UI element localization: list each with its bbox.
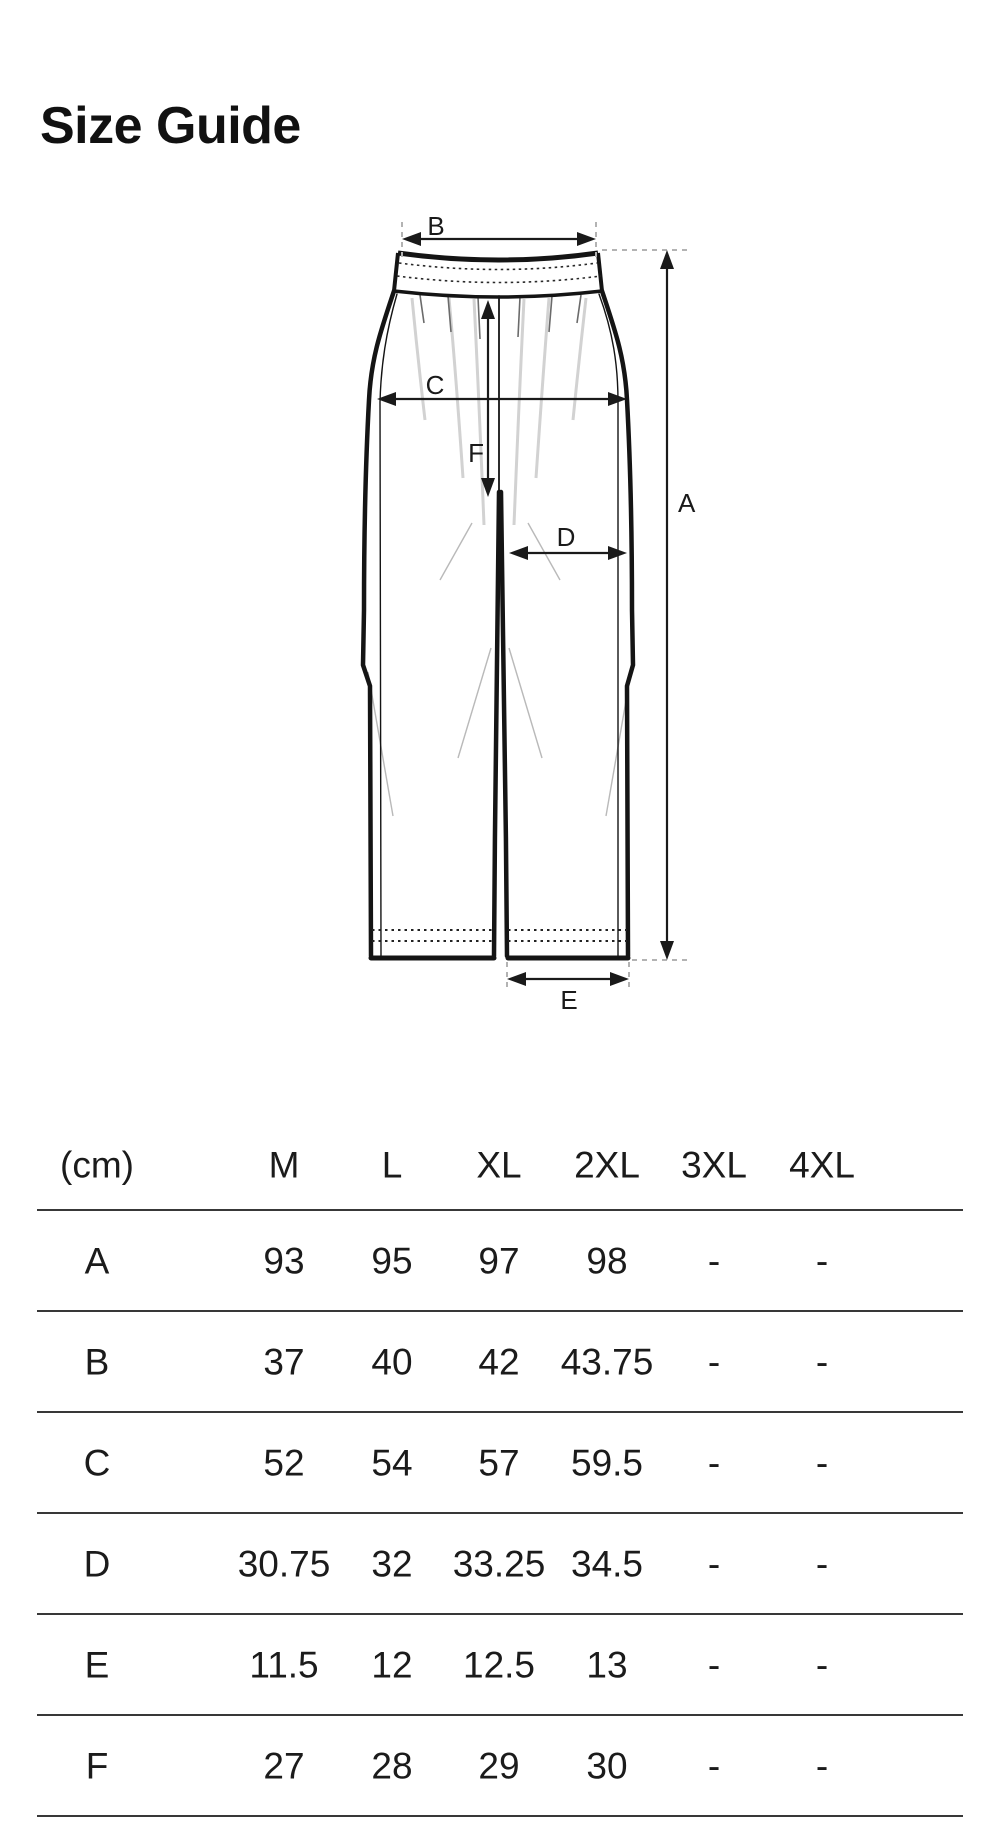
row-label: F [86, 1747, 109, 1784]
cell-value: 12 [371, 1646, 412, 1683]
unit-header: (cm) [60, 1146, 134, 1183]
cell-value: 54 [371, 1444, 412, 1481]
cell-value: 57 [478, 1444, 519, 1481]
cell-value: - [816, 1444, 828, 1481]
cell-value: 11.5 [249, 1646, 318, 1683]
page-title: Size Guide [40, 97, 301, 155]
cell-value: 29 [478, 1747, 519, 1784]
cell-value: 43.75 [561, 1343, 654, 1380]
cell-value: - [708, 1545, 720, 1582]
table-row-e: E 11.5 12 12.5 13 - - [37, 1615, 963, 1716]
pants-diagram-svg: B C F D A E [280, 185, 720, 1035]
cell-value: 37 [263, 1343, 304, 1380]
cell-value: 32 [371, 1545, 412, 1582]
col-header-xl: XL [476, 1146, 521, 1183]
table-row-f: F 27 28 29 30 - - [37, 1716, 963, 1817]
size-table-header-row: (cm) M L XL 2XL 3XL 4XL [37, 1120, 963, 1211]
pants-size-diagram: B C F D A E [280, 185, 720, 1035]
cell-value: 28 [371, 1747, 412, 1784]
dim-label-e: E [560, 985, 577, 1015]
cell-value: 27 [263, 1747, 304, 1784]
cell-value: - [708, 1444, 720, 1481]
waistband [394, 253, 602, 297]
cell-value: 30.75 [238, 1545, 331, 1582]
cell-value: 33.25 [453, 1545, 546, 1582]
cell-value: 98 [586, 1242, 627, 1279]
cell-value: 34.5 [571, 1545, 643, 1582]
cell-value: - [708, 1242, 720, 1279]
cell-value: 42 [478, 1343, 519, 1380]
cell-value: - [816, 1343, 828, 1380]
row-label: A [85, 1242, 110, 1279]
measure-arrow-a [660, 250, 674, 960]
col-header-3xl: 3XL [681, 1146, 747, 1183]
dim-label-c: C [426, 370, 445, 400]
dim-label-d: D [557, 522, 576, 552]
cell-value: - [816, 1545, 828, 1582]
cell-value: 97 [478, 1242, 519, 1279]
cell-value: 40 [371, 1343, 412, 1380]
col-header-2xl: 2XL [574, 1146, 640, 1183]
table-row-d: D 30.75 32 33.25 34.5 - - [37, 1514, 963, 1615]
dim-label-f: F [468, 438, 484, 468]
cell-value: - [708, 1343, 720, 1380]
row-label: B [85, 1343, 110, 1380]
measure-arrow-c [377, 392, 627, 406]
table-row-b: B 37 40 42 43.75 - - [37, 1312, 963, 1413]
cell-value: - [708, 1646, 720, 1683]
cell-value: 30 [586, 1747, 627, 1784]
col-header-l: L [382, 1146, 403, 1183]
cell-value: 52 [263, 1444, 304, 1481]
row-label: C [84, 1444, 111, 1481]
size-table: (cm) M L XL 2XL 3XL 4XL A 93 95 97 98 - … [37, 1120, 963, 1817]
col-header-4xl: 4XL [789, 1146, 855, 1183]
cell-value: - [708, 1747, 720, 1784]
cell-value: - [816, 1242, 828, 1279]
row-label: D [84, 1545, 111, 1582]
waistband-stitch-lines [397, 263, 601, 283]
table-row-c: C 52 54 57 59.5 - - [37, 1413, 963, 1514]
cell-value: 95 [371, 1242, 412, 1279]
cell-value: - [816, 1646, 828, 1683]
measure-arrow-e [507, 972, 629, 986]
hem-stitch-lines [372, 930, 627, 941]
pants-outline [363, 291, 633, 958]
col-header-m: M [269, 1146, 300, 1183]
cell-value: - [816, 1747, 828, 1784]
gather-tick-lines [420, 295, 581, 339]
cell-value: 59.5 [571, 1444, 643, 1481]
cell-value: 93 [263, 1242, 304, 1279]
row-label: E [85, 1646, 110, 1683]
dim-label-b: B [427, 211, 444, 241]
cell-value: 13 [586, 1646, 627, 1683]
dim-label-a: A [678, 488, 696, 518]
table-row-a: A 93 95 97 98 - - [37, 1211, 963, 1312]
cell-value: 12.5 [463, 1646, 535, 1683]
